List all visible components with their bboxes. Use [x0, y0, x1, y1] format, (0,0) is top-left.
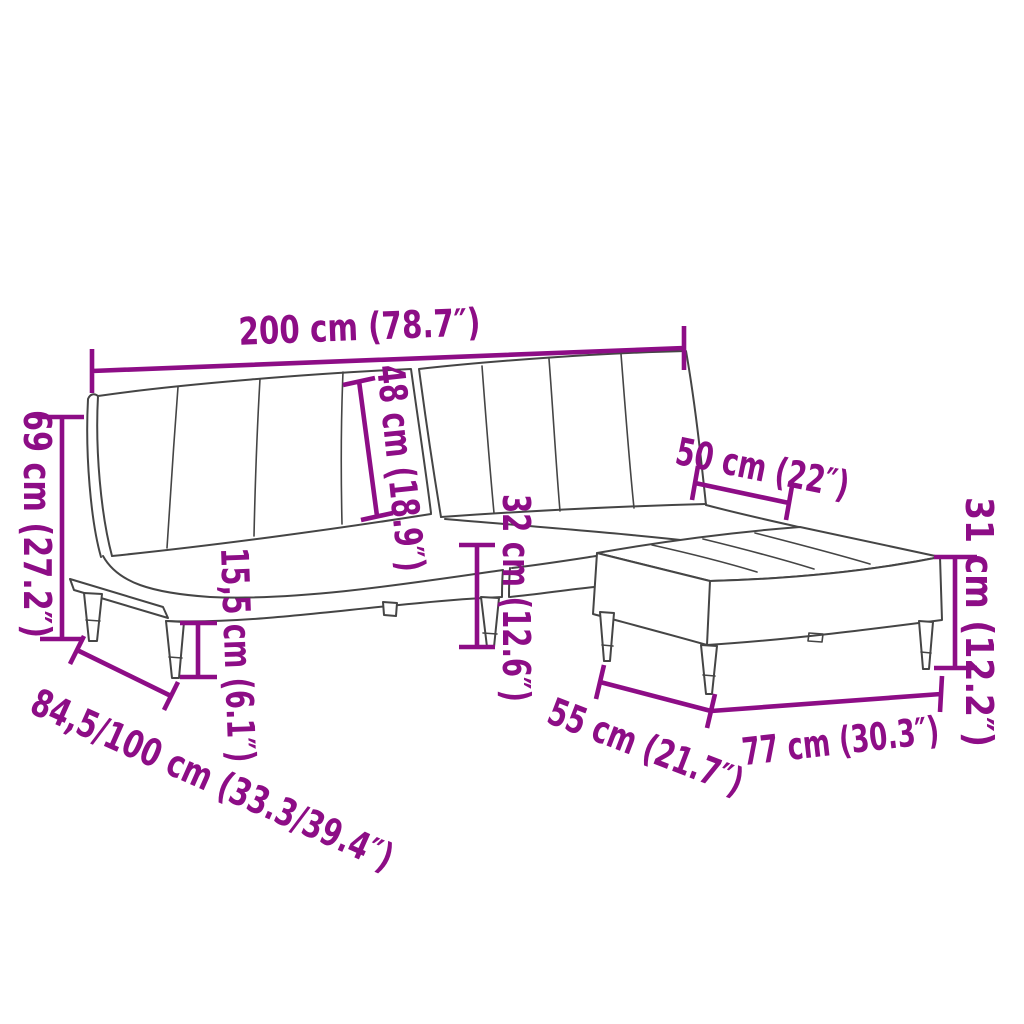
dim-footstool-height-label: 31 cm (12.2″) — [957, 497, 1001, 747]
product-dimension-diagram: 200 cm (78.7″) 69 cm (27.2″) 48 cm (18.9… — [0, 0, 1024, 1024]
dim-overall-width-label: 200 cm (78.7″) — [238, 300, 482, 354]
dim-backrest-height-label: 69 cm (27.2″) — [15, 410, 59, 638]
dim-leg-height-label: 15,5 cm (6.1″) — [212, 547, 263, 763]
dim-footstool-width-line — [711, 676, 942, 712]
sofa-leg-tip-lines — [86, 620, 497, 658]
dim-leg-height-line — [180, 623, 217, 677]
footstool — [593, 527, 942, 694]
dim-footstool-width-label: 77 cm (30.3″) — [740, 708, 942, 774]
diagram-canvas: 200 cm (78.7″) 69 cm (27.2″) 48 cm (18.9… — [0, 0, 1024, 1024]
dim-footstool-depth-label: 55 cm (21.7″) — [542, 689, 750, 804]
dim-sofa-depth-label: 84,5/100 cm (33.3/39.4″) — [24, 680, 400, 880]
dim-backrest-panel-height-label: 48 cm (18.9″) — [368, 362, 434, 573]
dim-seat-height-label: 32 cm (12.6″) — [494, 494, 538, 702]
footstool-leg-tip-lines — [602, 645, 931, 676]
